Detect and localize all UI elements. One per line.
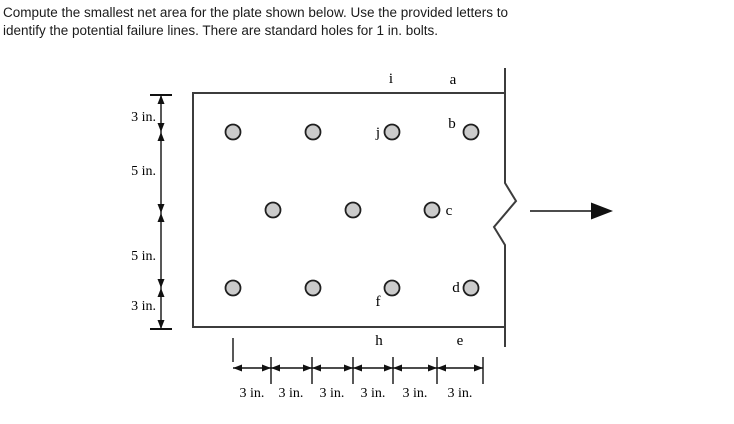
bolt-hole bbox=[226, 281, 241, 296]
failure-point-label: c bbox=[446, 203, 453, 219]
dimension-arrowhead bbox=[158, 204, 165, 213]
failure-point-label: d bbox=[452, 280, 460, 296]
dimension-arrowhead bbox=[158, 123, 165, 132]
dimension-arrowhead bbox=[233, 365, 242, 372]
plate-right-edge-break bbox=[494, 68, 516, 347]
bolt-hole bbox=[346, 203, 361, 218]
dimension-arrowhead bbox=[344, 365, 353, 372]
bolt-hole bbox=[464, 281, 479, 296]
bottom-dimension: 3 in.3 in.3 in.3 in.3 in.3 in. bbox=[233, 338, 483, 401]
left-dimension-label: 3 in. bbox=[131, 110, 156, 125]
failure-point-labels: iajbcfdhe bbox=[375, 71, 464, 349]
dimension-arrowhead bbox=[428, 365, 437, 372]
dimension-arrowhead bbox=[158, 95, 165, 104]
failure-point-label: i bbox=[389, 71, 393, 87]
failure-point-label: e bbox=[457, 333, 464, 349]
dimension-arrowhead bbox=[384, 365, 393, 372]
bolt-hole bbox=[266, 203, 281, 218]
dimension-arrowhead bbox=[158, 279, 165, 288]
dimension-arrowhead bbox=[262, 365, 271, 372]
dimension-arrowhead bbox=[158, 320, 165, 329]
bolt-hole bbox=[464, 125, 479, 140]
dimension-arrowhead bbox=[474, 365, 483, 372]
bottom-dimension-label: 3 in. bbox=[240, 386, 265, 401]
bolt-hole bbox=[385, 281, 400, 296]
dimension-arrowhead bbox=[353, 365, 362, 372]
dimension-arrowhead bbox=[303, 365, 312, 372]
bolt-holes bbox=[226, 125, 479, 296]
bolt-hole bbox=[385, 125, 400, 140]
dimension-arrowhead bbox=[312, 365, 321, 372]
bottom-dimension-label: 3 in. bbox=[279, 386, 304, 401]
dimension-arrowhead bbox=[437, 365, 446, 372]
bolt-hole bbox=[425, 203, 440, 218]
dimension-arrowhead bbox=[393, 365, 402, 372]
plate-diagram: iajbcfdhe3 in.5 in.5 in.3 in.3 in.3 in.3… bbox=[0, 0, 734, 424]
bolt-hole bbox=[226, 125, 241, 140]
failure-point-label: a bbox=[450, 72, 457, 88]
dimension-arrowhead bbox=[158, 213, 165, 222]
bottom-dimension-label: 3 in. bbox=[448, 386, 473, 401]
failure-point-label: h bbox=[375, 333, 383, 349]
failure-point-label: j bbox=[375, 125, 380, 141]
dimension-arrowhead bbox=[271, 365, 280, 372]
bolt-hole bbox=[306, 281, 321, 296]
bottom-dimension-label: 3 in. bbox=[320, 386, 345, 401]
left-dimension: 3 in.5 in.5 in.3 in. bbox=[131, 95, 172, 329]
dimension-arrowhead bbox=[158, 132, 165, 141]
bottom-dimension-label: 3 in. bbox=[403, 386, 428, 401]
failure-point-label: b bbox=[448, 116, 456, 132]
dimension-arrowhead bbox=[158, 288, 165, 297]
applied-load-arrowhead bbox=[591, 203, 613, 220]
bolt-hole bbox=[306, 125, 321, 140]
failure-point-label: f bbox=[376, 294, 381, 310]
left-dimension-label: 5 in. bbox=[131, 249, 156, 264]
left-dimension-label: 3 in. bbox=[131, 299, 156, 314]
left-dimension-label: 5 in. bbox=[131, 164, 156, 179]
applied-load-arrow bbox=[530, 203, 613, 220]
bottom-dimension-label: 3 in. bbox=[361, 386, 386, 401]
problem-screenshot: Compute the smallest net area for the pl… bbox=[0, 0, 734, 424]
